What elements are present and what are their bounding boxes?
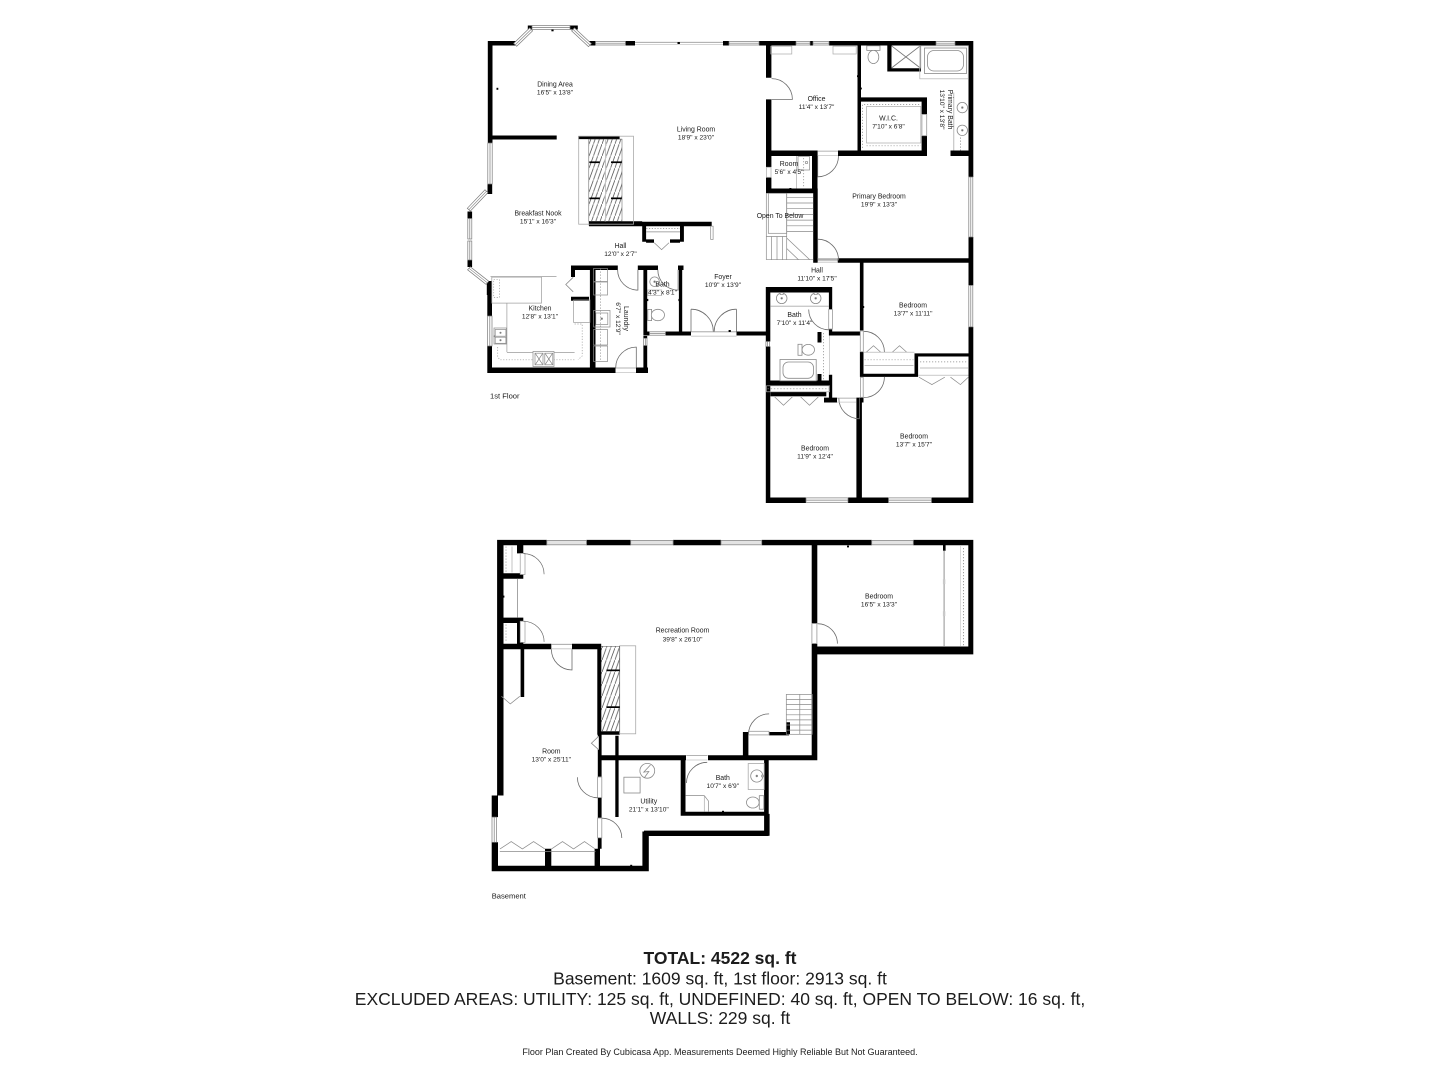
svg-text:Recreation Room: Recreation Room <box>656 628 710 635</box>
svg-text:19'9" x 13'3": 19'9" x 13'3" <box>861 202 898 209</box>
svg-text:39'8" x 26'10": 39'8" x 26'10" <box>663 637 703 644</box>
svg-text:12'8" x 13'1": 12'8" x 13'1" <box>522 314 559 321</box>
svg-text:5'6" x 4'5": 5'6" x 4'5" <box>775 169 804 176</box>
svg-text:Breakfast Nook: Breakfast Nook <box>514 211 562 218</box>
svg-text:10'9" x 13'9": 10'9" x 13'9" <box>705 282 742 289</box>
svg-text:W.I.C.: W.I.C. <box>879 115 898 122</box>
svg-text:EXCLUDED AREAS: UTILITY: 125 s: EXCLUDED AREAS: UTILITY: 125 sq. ft, UND… <box>355 989 1085 1009</box>
svg-text:Primary Bath13'10" x 13'8": Primary Bath13'10" x 13'8" <box>938 90 953 130</box>
svg-text:Floor Plan Created By Cubicasa: Floor Plan Created By Cubicasa App. Meas… <box>522 1047 917 1057</box>
svg-text:Room: Room <box>780 161 799 168</box>
svg-text:Bedroom: Bedroom <box>899 303 927 310</box>
svg-text:Kitchen: Kitchen <box>529 306 552 313</box>
svg-text:Bath: Bath <box>716 775 730 782</box>
svg-text:Bedroom: Bedroom <box>865 593 893 600</box>
svg-text:Bath: Bath <box>787 312 801 319</box>
svg-text:Primary Bedroom: Primary Bedroom <box>852 194 906 201</box>
svg-text:11'4" x 13'7": 11'4" x 13'7" <box>799 104 835 111</box>
svg-text:7'10" x 6'8": 7'10" x 6'8" <box>872 123 905 130</box>
svg-text:WALLS: 229 sq. ft: WALLS: 229 sq. ft <box>650 1008 791 1028</box>
svg-text:16'5" x 13'8": 16'5" x 13'8" <box>537 90 574 97</box>
svg-text:Dining Area: Dining Area <box>537 82 573 89</box>
svg-text:Office: Office <box>808 96 826 103</box>
svg-text:Laundry6'7" x 12'9": Laundry6'7" x 12'9" <box>614 302 629 335</box>
svg-text:1st Floor: 1st Floor <box>490 392 520 401</box>
svg-text:Room: Room <box>542 749 561 756</box>
svg-text:Foyer: Foyer <box>714 274 732 281</box>
svg-text:21'1" x 13'10": 21'1" x 13'10" <box>629 806 669 813</box>
svg-text:Utility: Utility <box>640 798 657 805</box>
svg-text:10'7" x 6'9": 10'7" x 6'9" <box>707 783 740 790</box>
svg-text:18'9" x 23'0": 18'9" x 23'0" <box>678 135 715 142</box>
svg-text:11'10" x 17'5": 11'10" x 17'5" <box>797 276 837 283</box>
svg-text:Hall: Hall <box>615 243 627 250</box>
svg-text:Basement: Basement <box>492 892 527 901</box>
svg-text:Living Room: Living Room <box>677 127 716 134</box>
svg-text:Bedroom: Bedroom <box>900 434 928 441</box>
svg-text:13'0" x 25'11": 13'0" x 25'11" <box>532 757 572 764</box>
svg-text:4'3" x 8'1": 4'3" x 8'1" <box>648 290 677 297</box>
svg-text:TOTAL: 4522 sq. ft: TOTAL: 4522 sq. ft <box>644 948 797 968</box>
svg-text:15'1" x 16'3": 15'1" x 16'3" <box>520 219 557 226</box>
svg-text:16'5" x 13'3": 16'5" x 13'3" <box>861 601 898 608</box>
svg-text:Bedroom: Bedroom <box>801 446 829 453</box>
svg-text:13'7" x 11'11": 13'7" x 11'11" <box>894 311 934 318</box>
svg-text:12'0" x 2'7": 12'0" x 2'7" <box>604 251 637 258</box>
svg-text:Hall: Hall <box>811 268 823 275</box>
svg-text:13'7" x 15'7": 13'7" x 15'7" <box>896 442 933 449</box>
svg-text:11'9" x 12'4": 11'9" x 12'4" <box>797 454 833 461</box>
svg-text:7'10" x 11'4": 7'10" x 11'4" <box>777 320 813 327</box>
svg-text:Bath: Bath <box>655 282 669 289</box>
svg-text:Basement: 1609 sq. ft, 1st flo: Basement: 1609 sq. ft, 1st floor: 2913 s… <box>553 969 887 989</box>
svg-text:Open To Below: Open To Below <box>757 213 804 220</box>
